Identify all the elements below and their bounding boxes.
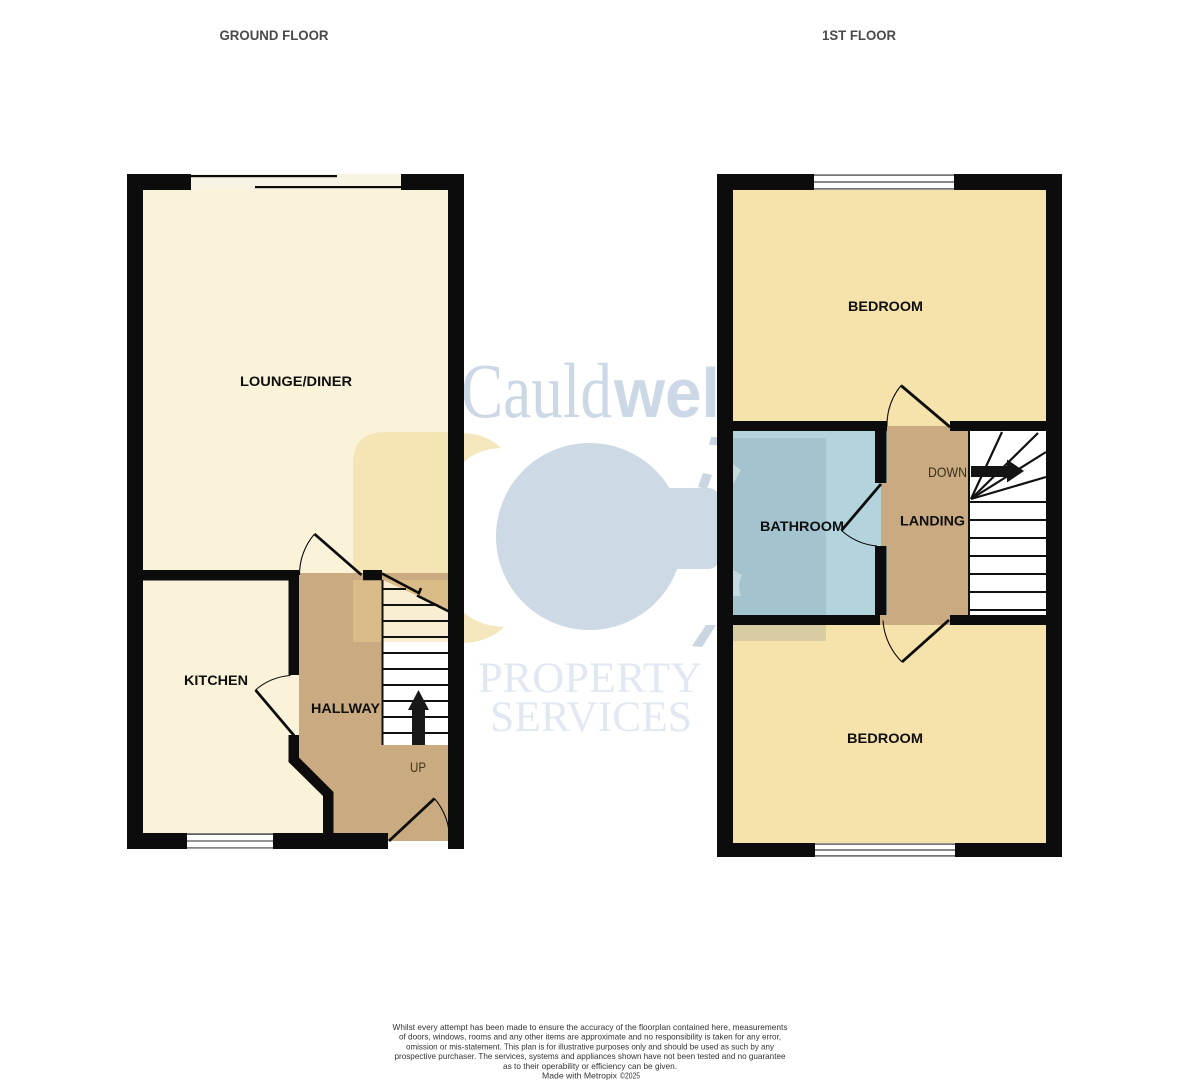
svg-text:HALLWAY: HALLWAY [311, 700, 381, 716]
svg-text:Whilst every attempt has been: Whilst every attempt has been made to en… [393, 1022, 788, 1032]
svg-text:BATHROOM: BATHROOM [760, 518, 844, 534]
svg-text:©2025: ©2025 [620, 1071, 640, 1080]
svg-text:as to their operability or eff: as to their operability or efficiency ca… [503, 1061, 677, 1071]
svg-text:DOWN: DOWN [928, 464, 967, 480]
svg-text:KITCHEN: KITCHEN [184, 672, 248, 688]
svg-text:Cauld: Cauld [461, 347, 612, 434]
svg-text:LOUNGE/DINER: LOUNGE/DINER [240, 373, 352, 389]
svg-text:UP: UP [410, 759, 426, 775]
svg-text:1ST FLOOR: 1ST FLOOR [822, 27, 896, 43]
svg-text:GROUND FLOOR: GROUND FLOOR [220, 27, 329, 43]
svg-text:Made with Metropix: Made with Metropix [542, 1071, 618, 1080]
svg-text:of doors, windows, rooms and a: of doors, windows, rooms and any other i… [399, 1032, 781, 1042]
svg-text:BEDROOM: BEDROOM [847, 730, 923, 746]
svg-text:LANDING: LANDING [900, 513, 965, 529]
svg-text:omission or mis-statement. Thi: omission or mis-statement. This plan is … [406, 1041, 775, 1051]
svg-text:SERVICES: SERVICES [490, 694, 692, 741]
svg-text:prospective purchaser. The ser: prospective purchaser. The services, sys… [395, 1051, 786, 1061]
svg-text:BEDROOM: BEDROOM [848, 298, 923, 314]
